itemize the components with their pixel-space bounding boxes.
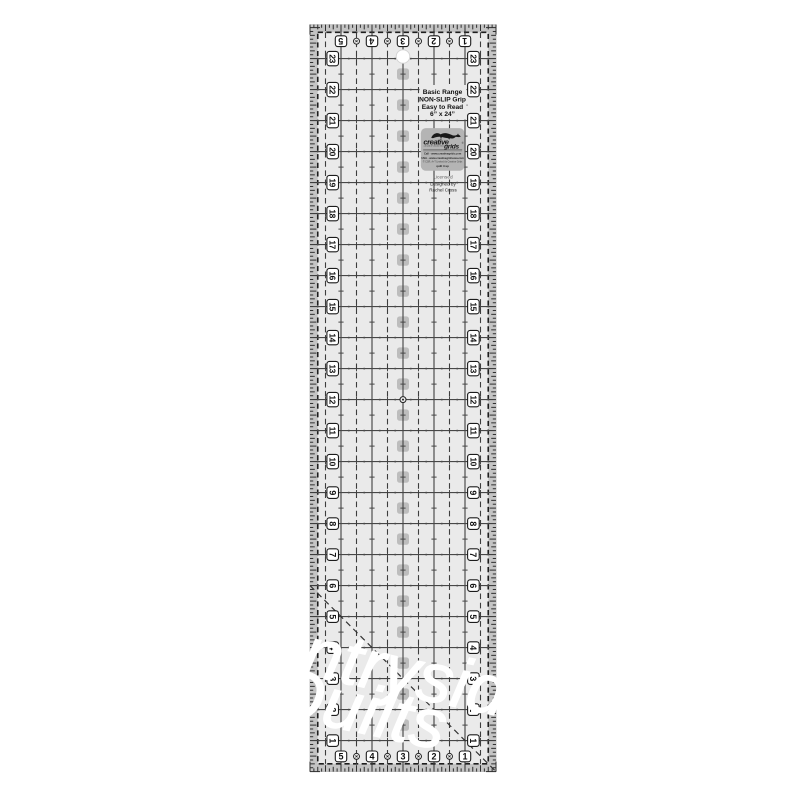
svg-text:23: 23 [468, 54, 478, 63]
svg-text:5: 5 [338, 752, 343, 762]
svg-text:15: 15 [328, 302, 338, 311]
svg-text:6” x 24”: 6” x 24” [430, 111, 455, 118]
svg-text:9: 9 [328, 490, 338, 495]
svg-text:5: 5 [468, 614, 478, 619]
svg-text:14: 14 [468, 333, 478, 342]
svg-text:2: 2 [431, 36, 436, 46]
svg-text:17: 17 [328, 240, 338, 249]
svg-text:4: 4 [369, 752, 374, 762]
svg-text:Basic Range: Basic Range [423, 89, 463, 96]
svg-text:22: 22 [328, 85, 338, 94]
svg-text:21: 21 [468, 116, 478, 125]
svg-text:10: 10 [468, 457, 478, 466]
svg-text:23: 23 [328, 54, 338, 63]
svg-text:13: 13 [328, 364, 338, 373]
svg-text:19: 19 [468, 178, 478, 187]
svg-text:15: 15 [468, 302, 478, 311]
svg-text:17: 17 [468, 240, 478, 249]
svg-text:16: 16 [328, 271, 338, 280]
svg-text:18: 18 [468, 209, 478, 218]
svg-text:13: 13 [468, 364, 478, 373]
svg-text:Rachel Cross: Rachel Cross [429, 188, 457, 193]
svg-text:NON-SLIP Grip: NON-SLIP Grip [419, 97, 466, 104]
svg-text:21: 21 [328, 116, 338, 125]
svg-text:8: 8 [468, 521, 478, 526]
svg-text:®: ® [462, 141, 464, 145]
svg-text:1: 1 [462, 36, 467, 46]
svg-text:12: 12 [328, 395, 338, 404]
svg-text:12: 12 [468, 395, 478, 404]
svg-text:16: 16 [468, 271, 478, 280]
svg-text:Designed by: Designed by [430, 182, 456, 187]
svg-text:Call - www.creativegrids.com: Call - www.creativegrids.com [424, 151, 462, 155]
svg-text:7: 7 [468, 552, 478, 557]
svg-text:USA - www.creativegridsusa.com: USA - www.creativegridsusa.com [421, 156, 464, 160]
svg-text:1: 1 [462, 752, 467, 762]
svg-text:11: 11 [328, 427, 338, 436]
svg-text:11: 11 [468, 427, 478, 436]
svg-text:8: 8 [328, 521, 338, 526]
svg-text:14: 14 [328, 333, 338, 342]
svg-text:20: 20 [328, 147, 338, 156]
svg-text:6: 6 [468, 583, 478, 588]
svg-text:3: 3 [400, 36, 405, 46]
svg-text:22: 22 [468, 85, 478, 94]
svg-text:quilt it up: quilt it up [436, 164, 449, 168]
svg-text:10: 10 [328, 457, 338, 466]
svg-text:Licensed: Licensed [433, 174, 453, 179]
svg-text:© CGR, A+T Limited t/a Creativ: © CGR, A+T Limited t/a Creative Grids [423, 161, 463, 164]
svg-text:1: 1 [468, 738, 478, 743]
svg-text:4: 4 [369, 36, 374, 46]
svg-text:Easy to Read: Easy to Read [422, 104, 463, 111]
svg-text:18: 18 [328, 209, 338, 218]
svg-text:19: 19 [328, 178, 338, 187]
svg-text:20: 20 [468, 147, 478, 156]
svg-text:6: 6 [328, 583, 338, 588]
svg-text:7: 7 [328, 552, 338, 557]
svg-text:5: 5 [338, 36, 343, 46]
svg-text:9: 9 [468, 490, 478, 495]
